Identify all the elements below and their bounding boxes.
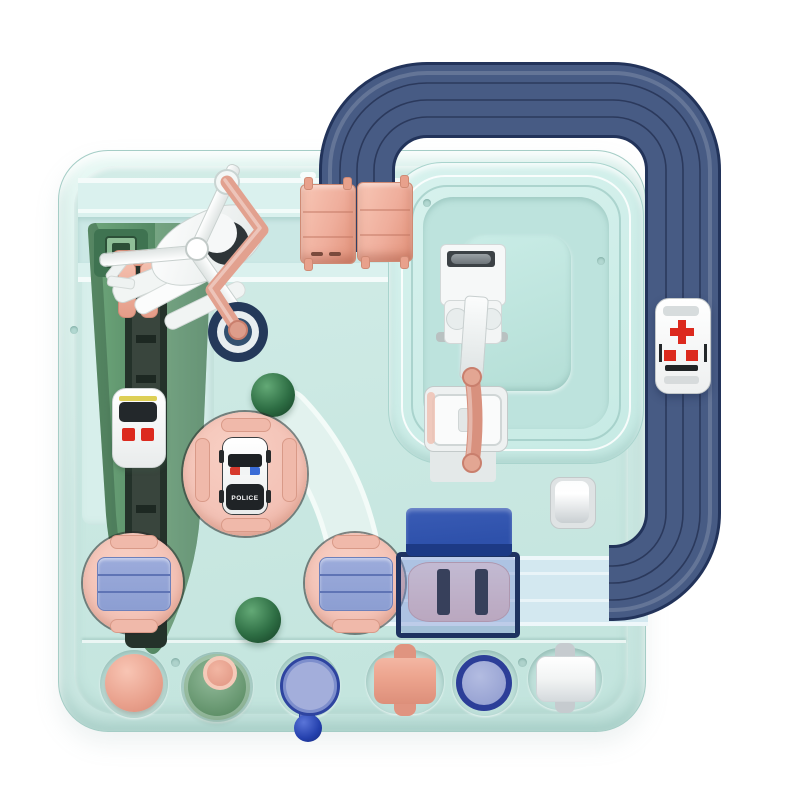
gate-seam bbox=[360, 209, 410, 211]
ambulance-red-square bbox=[664, 350, 676, 361]
lightbar-white bbox=[240, 467, 250, 475]
police-lightbar bbox=[230, 467, 260, 475]
dial-pad bbox=[110, 619, 158, 633]
train-red-square bbox=[122, 428, 135, 441]
crane-roller bbox=[451, 254, 491, 264]
train-car bbox=[112, 388, 166, 468]
elevator-tray-rim bbox=[427, 392, 435, 444]
tunnel-window-frame bbox=[396, 552, 520, 638]
ambulance-bumper bbox=[664, 376, 699, 384]
pink-lever bbox=[180, 160, 320, 350]
dial-stripe-line bbox=[320, 574, 392, 576]
dial-stripe-line bbox=[98, 591, 170, 593]
police-rear: POLICE bbox=[226, 484, 264, 510]
pink-gate-right bbox=[357, 182, 413, 262]
lightbar-blue bbox=[250, 467, 260, 475]
paddle-ball bbox=[294, 714, 322, 742]
green-dome-upper bbox=[251, 373, 295, 417]
blue-round-center bbox=[462, 661, 506, 705]
ambulance-car bbox=[655, 298, 711, 394]
button-blue-paddle bbox=[280, 656, 340, 716]
police-wheel bbox=[266, 450, 271, 463]
button-pink-dome bbox=[105, 654, 163, 712]
lightbar-red bbox=[230, 467, 240, 475]
train-windshield bbox=[119, 402, 157, 422]
gate-slot bbox=[329, 252, 341, 256]
police-wheel bbox=[266, 490, 271, 503]
dial-pad bbox=[332, 619, 380, 633]
police-turntable: POLICE bbox=[183, 412, 307, 536]
police-windshield bbox=[228, 454, 262, 467]
turntable-pad bbox=[195, 438, 210, 502]
police-car: POLICE bbox=[223, 438, 267, 514]
turntable-pad bbox=[221, 518, 271, 532]
gate-foot bbox=[361, 256, 370, 269]
tunnel-canopy-edge bbox=[406, 544, 512, 556]
red-cross-icon bbox=[670, 328, 694, 336]
screw-dot bbox=[518, 658, 527, 667]
gate-seam bbox=[360, 234, 410, 236]
turntable-pad bbox=[282, 438, 297, 502]
screw-dot bbox=[171, 658, 180, 667]
gate-foot bbox=[400, 175, 409, 188]
green-dome-lower bbox=[235, 597, 281, 643]
police-wheel bbox=[219, 450, 224, 463]
gate-foot bbox=[343, 177, 352, 190]
button-white-roller bbox=[536, 656, 596, 702]
dial-stripe-block bbox=[319, 557, 393, 611]
product-photo: POLICE bbox=[0, 0, 800, 800]
train-stripe bbox=[119, 396, 157, 401]
gate-foot bbox=[400, 256, 409, 269]
funnel-pink-core bbox=[203, 656, 237, 690]
dial-stripe-line bbox=[320, 591, 392, 593]
pink-pipe bbox=[455, 365, 495, 477]
route-dial-right bbox=[305, 533, 405, 633]
dial-pad bbox=[332, 535, 380, 549]
police-label: POLICE bbox=[231, 495, 258, 502]
route-dial-left bbox=[83, 533, 183, 633]
dial-pad bbox=[110, 535, 158, 549]
ambulance-red-square bbox=[686, 350, 698, 361]
ambulance-windshield bbox=[663, 306, 699, 316]
police-wheel bbox=[219, 490, 224, 503]
ambulance-rear-window bbox=[665, 365, 698, 371]
white-roller-surface bbox=[555, 481, 589, 523]
train-red-square bbox=[141, 428, 154, 441]
turntable-pad bbox=[221, 418, 271, 432]
button-pink-roller bbox=[374, 658, 436, 704]
ambulance-side-mark bbox=[659, 344, 662, 362]
dial-stripe-line bbox=[98, 574, 170, 576]
dial-stripe-block bbox=[97, 557, 171, 611]
ambulance-side-mark bbox=[704, 344, 707, 362]
